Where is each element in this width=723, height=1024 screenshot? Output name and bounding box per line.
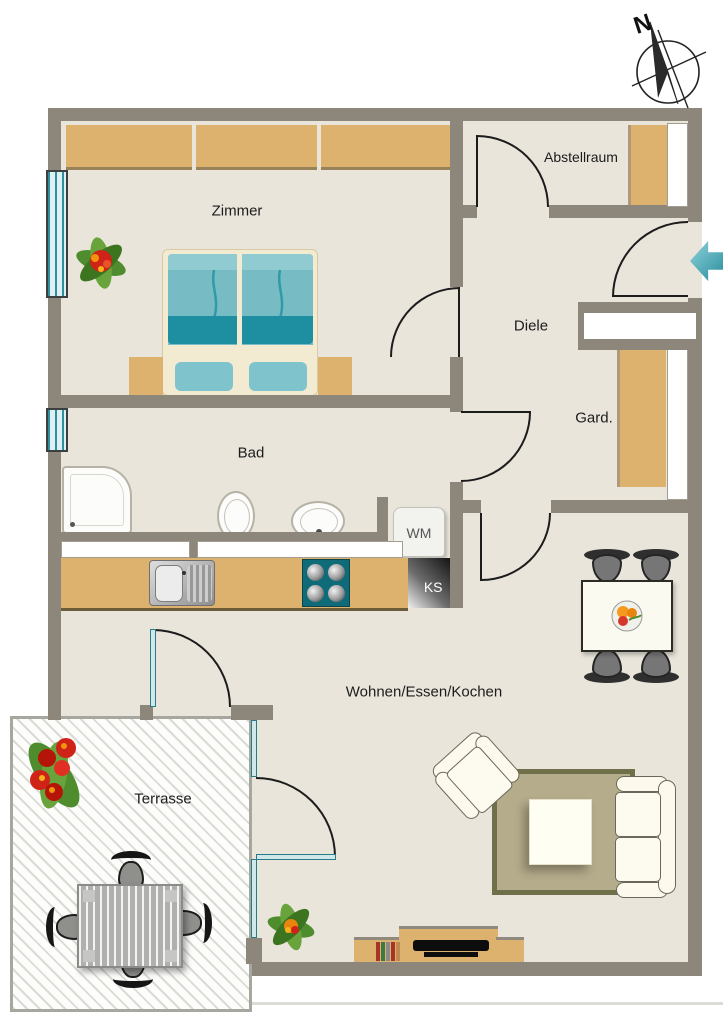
wall-kitchen-diele	[450, 513, 463, 608]
window-bad	[46, 408, 68, 452]
floor-plan: WM KS	[0, 0, 723, 1024]
books	[376, 942, 400, 961]
dining-chair	[584, 647, 630, 683]
coffee-table	[529, 799, 592, 865]
glass-wall-segment	[251, 859, 257, 938]
stove-cooktop	[302, 559, 350, 607]
sofa	[612, 775, 690, 899]
nightstand	[318, 357, 352, 397]
coat-wardrobe	[617, 347, 666, 487]
nightstand	[129, 357, 163, 397]
compass-icon: N	[622, 8, 722, 113]
storage-shelf	[628, 125, 669, 205]
fruit-bowl-icon	[609, 598, 645, 634]
window-zimmer	[46, 170, 68, 298]
wardrobe-closet-segment	[66, 125, 192, 170]
door-leaf-living	[480, 513, 482, 581]
wall-top	[48, 108, 702, 121]
shower-drain	[70, 522, 75, 527]
compass-north-label: N	[630, 9, 655, 40]
wall-diele-living-east	[551, 500, 688, 513]
label-wohnen: Wohnen/Essen/Kochen	[346, 684, 503, 701]
bed-divider	[237, 252, 242, 395]
door-leaf-abstellraum	[476, 135, 478, 207]
wall-bad-south	[48, 532, 388, 541]
fridge: KS	[408, 558, 450, 608]
double-bed	[162, 249, 318, 396]
wall-terrace-block-right	[231, 705, 273, 720]
wardrobe-closet-segment	[321, 125, 453, 170]
niche-garderobe	[667, 345, 688, 500]
door-leaf-terrace-a	[150, 629, 156, 707]
wall-abstellraum-west	[463, 205, 477, 218]
wall-right-upper	[688, 108, 702, 222]
kitchen-passthrough	[61, 541, 190, 558]
niche-abstellraum	[667, 123, 688, 207]
kitchen-passthrough	[197, 541, 403, 558]
door-leaf-bad	[461, 411, 531, 413]
door-leaf-terrace-b	[256, 854, 336, 860]
wall-zimmer-diele-upper	[450, 121, 463, 287]
backsplash-separator	[190, 541, 197, 558]
glass-wall-segment	[251, 720, 257, 777]
bed-pillow	[175, 362, 233, 391]
tv	[413, 940, 489, 951]
plant-icon	[265, 900, 317, 954]
wall-terrace-block-left	[140, 705, 153, 720]
wall-bad-wm-stub	[377, 497, 388, 541]
dining-table	[581, 580, 673, 652]
fridge-label: KS	[424, 579, 443, 595]
wall-right-lower	[688, 298, 702, 976]
wardrobe-closet-segment	[196, 125, 317, 170]
door-leaf-zimmer	[458, 287, 460, 357]
label-bad: Bad	[238, 445, 265, 462]
wall-bottom	[252, 962, 688, 976]
ground-shadow-line	[252, 1002, 723, 1005]
label-zimmer: Zimmer	[212, 203, 263, 220]
plant-icon	[72, 233, 130, 293]
shower-tray	[62, 466, 132, 534]
label-diele: Diele	[514, 318, 548, 335]
door-leaf-entry	[612, 295, 688, 297]
label-abstellraum: Abstellraum	[544, 149, 618, 165]
flower-cluster-icon	[14, 730, 94, 820]
label-garderobe: Gard.	[575, 410, 613, 427]
wall-diele-living-west	[450, 500, 481, 513]
sideboard	[496, 937, 524, 965]
dining-chair	[633, 647, 679, 683]
tv-stand	[424, 952, 478, 957]
wall-terrace-bottom-stub	[246, 938, 262, 964]
washing-machine-label: WM	[407, 525, 432, 541]
bed-pillow	[249, 362, 307, 391]
wall-zimmer-bad	[48, 395, 463, 408]
terrace-table	[77, 884, 183, 968]
niche-entry	[584, 313, 696, 339]
kitchen-counter	[61, 558, 408, 611]
kitchen-sink	[149, 560, 215, 606]
label-terrasse: Terrasse	[134, 791, 192, 808]
